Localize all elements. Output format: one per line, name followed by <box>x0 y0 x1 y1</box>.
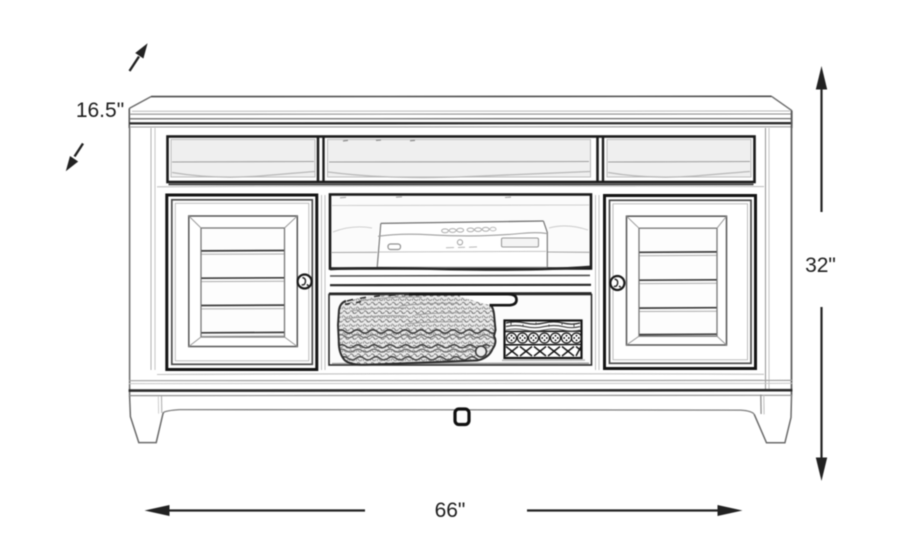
svg-text:16.5": 16.5" <box>76 99 124 122</box>
svg-text:66": 66" <box>435 499 466 522</box>
svg-text:32": 32" <box>805 254 836 277</box>
